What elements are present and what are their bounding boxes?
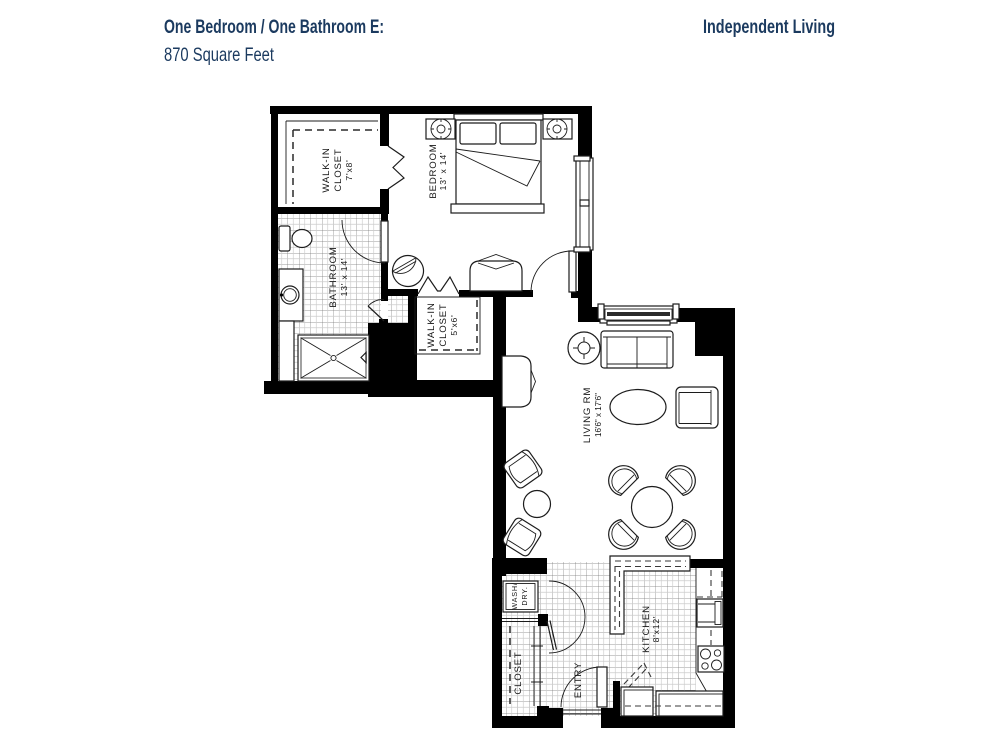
svg-text:WASH/: WASH/ — [510, 582, 519, 609]
svg-text:CLOSET: CLOSET — [438, 303, 449, 346]
svg-text:13' x 14': 13' x 14' — [339, 258, 349, 297]
svg-text:870 Square Feet: 870 Square Feet — [164, 44, 274, 66]
svg-text:WALK-IN: WALK-IN — [426, 302, 437, 347]
svg-text:ENTRY: ENTRY — [573, 662, 584, 698]
svg-text:8'x12': 8'x12' — [651, 616, 661, 643]
svg-text:13' x 14': 13' x 14' — [438, 152, 448, 191]
svg-text:16'6" x 17'6": 16'6" x 17'6" — [594, 393, 603, 437]
svg-text:7'x8': 7'x8' — [344, 159, 354, 180]
svg-text:5'x6': 5'x6' — [449, 314, 459, 335]
svg-text:CLOSET: CLOSET — [513, 651, 524, 694]
svg-text:Independent Living: Independent Living — [703, 17, 835, 38]
svg-text:One Bedroom / One Bathroom E:: One Bedroom / One Bathroom E: — [164, 16, 384, 38]
svg-text:WALK-IN: WALK-IN — [321, 147, 332, 192]
svg-text:LIVING RM: LIVING RM — [582, 387, 593, 443]
svg-text:CLOSET: CLOSET — [333, 148, 344, 191]
svg-text:BATHROOM: BATHROOM — [328, 246, 339, 307]
svg-text:DRY.: DRY. — [520, 586, 529, 605]
